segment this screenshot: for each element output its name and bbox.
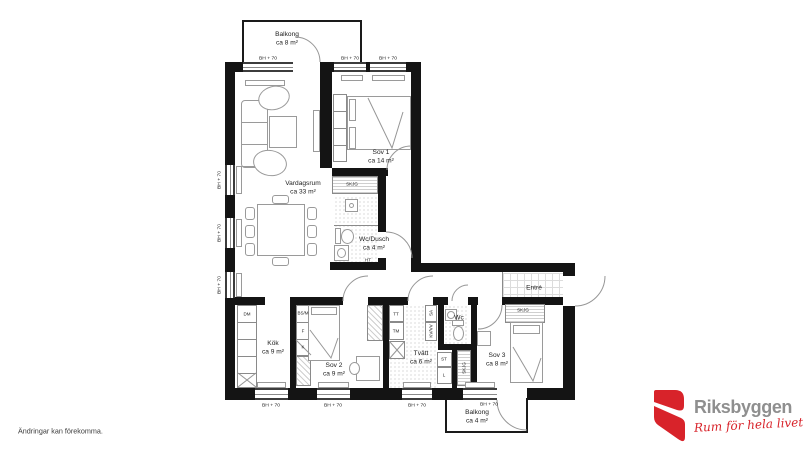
riksbyggen-logo-mark [650,389,688,445]
room-label-wc: Wc [454,314,464,322]
dryer-label: TT [393,312,399,317]
window-height-label: BH + 70 [216,224,222,242]
window-height-label: BH + 70 [259,55,277,61]
room-name: Sov 2 [323,362,345,370]
logo-mark-top [654,390,684,411]
counter-cross [238,373,256,387]
room-area: ca 14 m² [368,157,394,165]
room-name: Wc/Dusch [359,236,389,244]
room-name: Vardagsrum [285,180,320,188]
room-name: Balkong [465,409,489,417]
window-height-label: BH + 70 [480,401,498,407]
room-name: Kök [262,340,284,348]
room-name: Tvätt [410,350,432,358]
window-height-label: BH + 70 [216,171,222,189]
logo-brand: Riksbyggen [694,397,803,418]
disclaimer-text: Ändringar kan förekomma. [18,427,103,435]
window-height-label: BH + 70 [341,55,359,61]
room-name: Sov 3 [486,352,508,360]
sliding-wardrobe-label: SKJG [517,308,529,313]
logo-mark-bottom [654,406,685,441]
room-label-wc-dusch: Wc/Dusch ca 4 m² [359,236,389,253]
room-name: Entré [526,284,542,292]
fridge-label: K [301,345,304,350]
room-area: ca 8 m² [486,360,508,368]
door-arc [386,232,412,258]
door-arc [343,276,368,301]
room-area: ca 4 m² [465,417,489,425]
bed-fold-line [368,98,403,148]
door-arc [478,305,502,329]
room-area: ca 9 m² [323,370,345,378]
window-height-label: BH + 70 [324,402,342,408]
room-label-sov2: Sov 2 ca 9 m² [323,362,345,379]
door-arc [497,400,527,430]
sliding-wardrobe-label: SKJG [346,182,358,187]
room-name: Sov 1 [368,149,394,157]
riksbyggen-logo: Riksbyggen Rum för hela livet [650,389,803,445]
room-name: Balkong [275,31,299,39]
water-shaft-label: KV/VV [429,324,434,337]
room-label-tvatt: Tvätt ca 6 m² [410,350,432,367]
room-label-sov1: Sov 1 ca 14 m² [368,149,394,166]
floorplan-page: Balkong ca 8 m² Vardagsrum ca 33 m² Sov … [0,0,810,455]
room-label-entre: Entré [526,284,542,292]
towel-dryer-label: HT [365,258,371,263]
dishwasher-label: DM [244,312,251,317]
cleaning-closet-label: ST [441,357,447,362]
pantry-label: BS/M [297,311,308,316]
logo-tagline: Rum för hela livet [694,415,804,435]
door-arc [408,276,433,301]
logo-text: Riksbyggen Rum för hela livet [694,389,803,432]
door-arc [452,285,468,301]
room-area: ca 6 m² [410,358,432,366]
room-area: ca 4 m² [359,244,389,252]
door-swings-overlay [0,0,810,455]
window-height-label: BH + 70 [216,276,222,294]
sliding-wardrobe-label: SKJG [462,362,467,374]
bed-fold-line [513,347,541,381]
bench-cross [390,342,404,358]
room-label-sov3: Sov 3 ca 8 m² [486,352,508,369]
window-height-label: BH + 70 [262,402,280,408]
room-label-balkong-top: Balkong ca 8 m² [275,31,299,48]
freezer-label: F [302,329,305,334]
linen-closet-label: L [443,373,446,378]
room-label-balkong-bottom: Balkong ca 4 m² [465,409,489,426]
entry-door-arc [575,276,605,306]
room-area: ca 8 m² [275,39,299,47]
bed-fold-line [310,330,338,358]
room-area: ca 9 m² [262,348,284,356]
shaft-label: SA [429,310,434,316]
window-height-label: BH + 70 [379,55,397,61]
room-name: Wc [454,314,464,322]
room-label-vardagsrum: Vardagsrum ca 33 m² [285,180,320,197]
room-area: ca 33 m² [285,188,320,196]
room-label-kok: Kök ca 9 m² [262,340,284,357]
washer-label: TM [393,329,400,334]
window-height-label: BH + 70 [408,402,426,408]
